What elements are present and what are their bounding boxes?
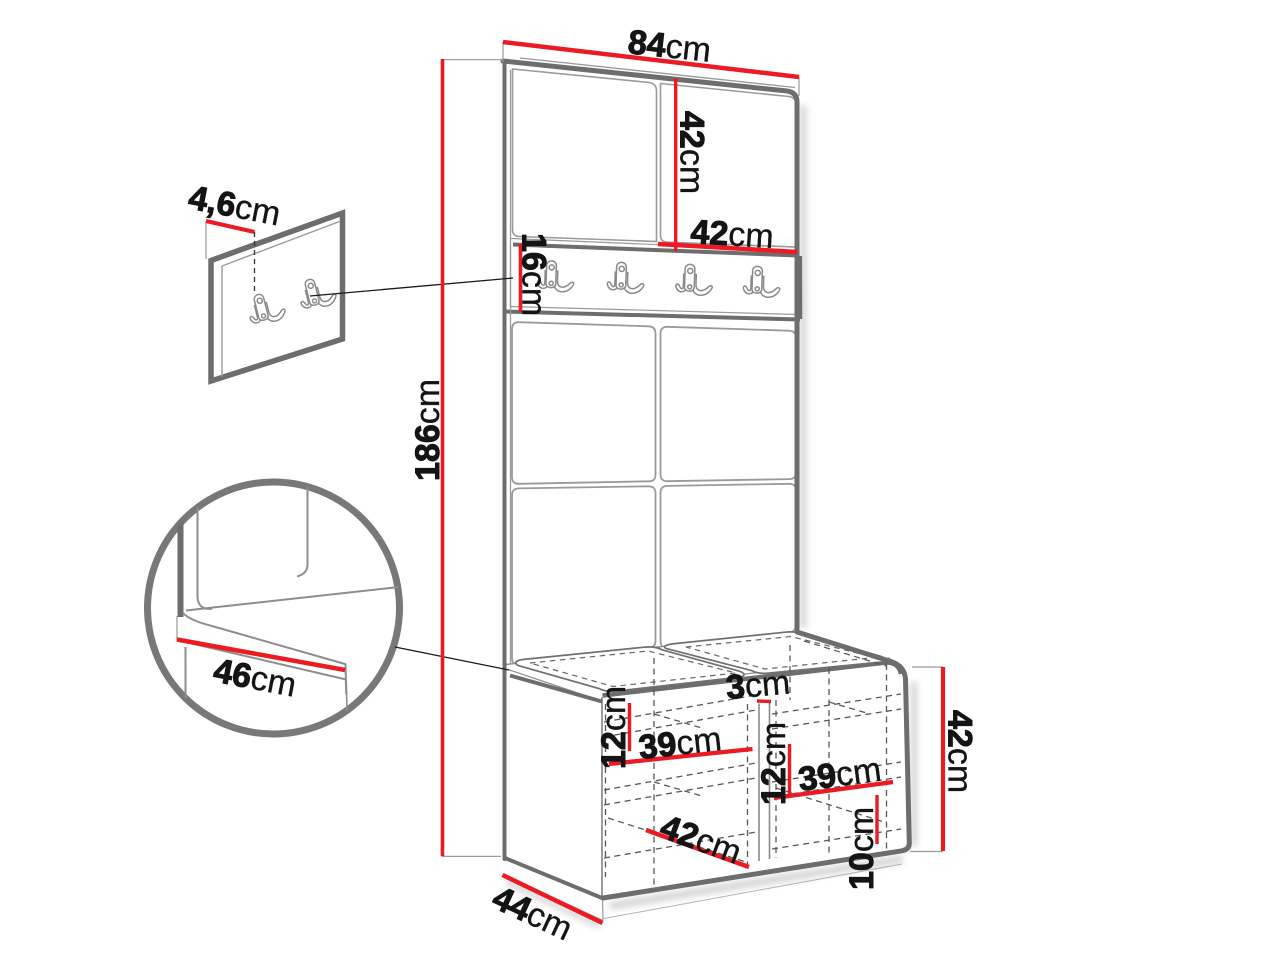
- svg-text:10cm: 10cm: [843, 807, 881, 890]
- svg-text:42cm: 42cm: [690, 213, 775, 256]
- svg-text:84cm: 84cm: [626, 23, 713, 70]
- svg-text:12cm: 12cm: [755, 722, 793, 805]
- svg-text:16cm: 16cm: [515, 233, 553, 316]
- svg-text:186cm: 186cm: [409, 379, 447, 481]
- svg-text:12cm: 12cm: [595, 686, 633, 769]
- svg-text:4,6cm: 4,6cm: [185, 179, 283, 234]
- svg-text:42cm: 42cm: [673, 111, 711, 194]
- svg-text:42cm: 42cm: [941, 710, 979, 793]
- svg-text:3cm: 3cm: [724, 664, 791, 707]
